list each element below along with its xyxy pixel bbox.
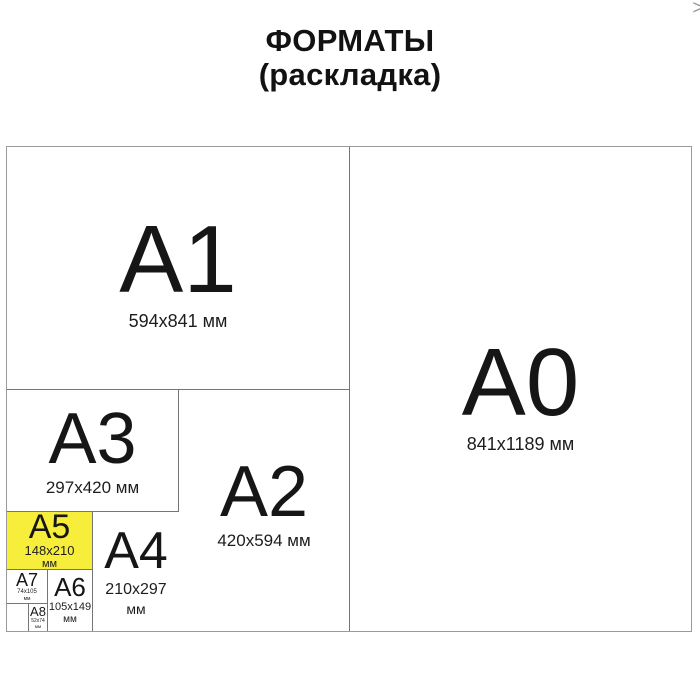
format-unit-a7: мм bbox=[24, 596, 31, 602]
format-box-a3: A3 297x420 мм bbox=[7, 390, 179, 512]
format-unit-a8: мм bbox=[35, 624, 41, 629]
page-title-line2: (раскладка) bbox=[0, 58, 700, 92]
format-dims-a4: 210x297 bbox=[105, 580, 166, 600]
format-label-a2: A2 bbox=[220, 457, 308, 527]
format-dims-a3: 297x420 мм bbox=[46, 477, 139, 498]
format-dims-a5: 148x210 bbox=[25, 543, 75, 558]
next-arrow-icon[interactable]: > bbox=[692, 0, 700, 18]
format-label-a3: A3 bbox=[48, 404, 136, 474]
format-dims-a6: 105x149 bbox=[49, 601, 91, 614]
format-label-a6: A6 bbox=[54, 575, 86, 599]
format-label-a0: A0 bbox=[462, 337, 579, 429]
format-box-a2: A2 420x594 мм bbox=[179, 390, 350, 631]
format-box-a7: A7 74x105 мм bbox=[7, 570, 48, 604]
format-box-a4: A4 210x297 мм bbox=[93, 512, 179, 631]
page-title-line1: ФОРМАТЫ bbox=[0, 24, 700, 58]
paper-format-diagram: A1 594x841 мм A0 841x1189 мм A3 297x420 … bbox=[6, 146, 692, 632]
format-dims-a7: 74x105 bbox=[17, 589, 37, 596]
format-label-a8: A8 bbox=[30, 606, 46, 617]
format-label-a1: A1 bbox=[119, 214, 236, 306]
format-box-a5-highlighted: A5 148x210 мм bbox=[7, 512, 93, 570]
product-image-slide: ФОРМАТЫ (раскладка) > A1 594x841 мм A0 8… bbox=[0, 0, 700, 700]
format-dims-a1: 594x841 мм bbox=[129, 310, 228, 332]
format-box-a1: A1 594x841 мм bbox=[7, 147, 350, 390]
format-box-a0: A0 841x1189 мм bbox=[350, 147, 691, 631]
format-label-a4: A4 bbox=[104, 526, 168, 576]
page-title: ФОРМАТЫ (раскладка) bbox=[0, 24, 700, 92]
format-label-a7: A7 bbox=[16, 572, 38, 588]
format-unit-a5: мм bbox=[42, 558, 57, 570]
format-dims-a0: 841x1189 мм bbox=[467, 433, 575, 455]
format-box-a8: A8 52x74 мм bbox=[28, 604, 48, 631]
format-box-a6: A6 105x149 мм bbox=[48, 570, 93, 631]
format-dims-a2: 420x594 мм bbox=[217, 530, 310, 551]
format-label-a5: A5 bbox=[29, 512, 71, 542]
format-unit-a4: мм bbox=[126, 600, 145, 618]
format-unit-a6: мм bbox=[63, 614, 77, 626]
